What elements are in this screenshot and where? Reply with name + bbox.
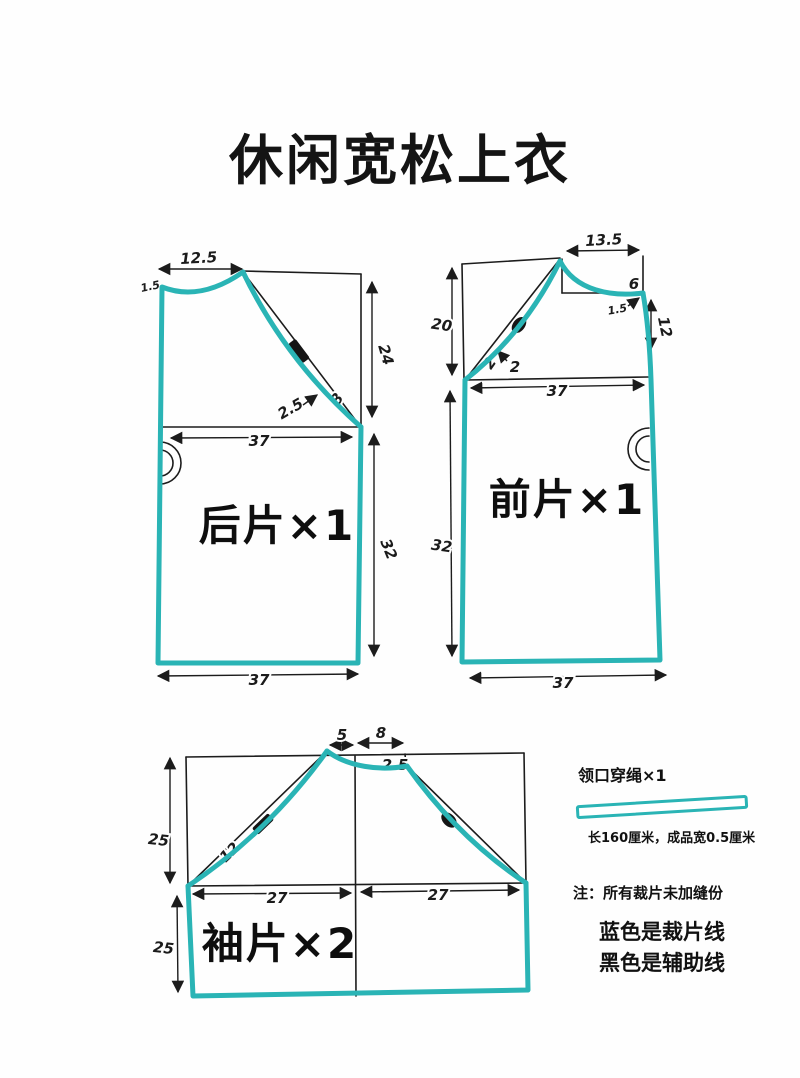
sleeve-underarm-aux-line: [188, 883, 526, 886]
sleeve-piece-name: 袖片×2: [202, 919, 358, 968]
back-piece: 12.5 1.5 24 37 32 37 2.5 8 后片×1: [139, 248, 401, 689]
front-side-dim-line: [450, 391, 452, 656]
sleeve-right-aux-line: [524, 753, 526, 883]
pattern-sheet: 休闲宽松上衣 12.5 1.5 24 37 32 37 2.5: [0, 0, 800, 1078]
sleeve-left-aux-line: [186, 757, 188, 886]
sleeve-cap-right-label: 8: [376, 724, 386, 742]
front-hem-label: 37: [553, 674, 574, 692]
front-piece: 13.5 20 6 1.5 12 37 32 37 2 2: [430, 230, 676, 692]
back-neck-drop-label: 1.5: [139, 278, 161, 295]
front-edge-label: 12: [654, 315, 676, 339]
back-side-label: 32: [376, 536, 401, 562]
back-raglan-depth-label: 24: [374, 342, 397, 367]
sleeve-lower-length-label: 25: [152, 938, 175, 958]
front-top-aux-line: [462, 258, 560, 264]
back-curve-gap-arrow: [303, 395, 317, 405]
sleeve-cap-left-label: 5: [337, 726, 347, 744]
sleeve-underarm-right-label: 27: [428, 886, 449, 904]
sleeve-cap-height-label: 25: [147, 830, 170, 850]
front-neck-gap-arrow: [628, 298, 639, 306]
front-side-notch-arc-inner: [636, 436, 649, 462]
sleeve-lower-length-dim-line: [177, 896, 178, 992]
drawstring-spec: 长160厘米，成品宽0.5厘米: [588, 827, 755, 846]
front-raglan-depth-label: 20: [430, 315, 453, 336]
back-top-aux-line: [242, 271, 361, 274]
front-underarm-aux-line: [465, 377, 648, 380]
front-left-aux-line: [462, 264, 464, 380]
front-chest-label: 37: [547, 382, 568, 400]
back-hem-label: 37: [249, 671, 270, 689]
back-cut-outline: [158, 272, 361, 663]
front-shoulder-width-label: 13.5: [585, 230, 623, 250]
legend-cut-line: 蓝色是裁片线: [599, 916, 725, 946]
front-neck-gap-label: 1.5: [607, 301, 629, 317]
front-side-label: 32: [430, 536, 453, 557]
back-neck-width-label: 12.5: [180, 248, 218, 268]
back-piece-name: 后片×1: [199, 501, 355, 550]
front-piece-name: 前片×1: [489, 475, 645, 524]
sleeve-left-diag-aux-line: [188, 751, 327, 886]
back-curve-gap-label: 2.5: [274, 394, 306, 423]
sleeve-piece: 5 8 2.5 25 12 27 27 25 袖片×2: [147, 724, 528, 996]
back-chest-label: 37: [249, 432, 270, 450]
front-shoulder-width-dim-line: [567, 250, 639, 251]
front-side-notch-arc-outer: [628, 428, 649, 470]
back-side-notch-arc-outer: [160, 442, 181, 484]
drawstring-title: 领口穿绳×1: [578, 762, 667, 786]
legend-aux-line: 黑色是辅助线: [599, 947, 725, 977]
front-neck-depth-label: 6: [629, 275, 639, 293]
sleeve-underarm-left-label: 27: [267, 889, 288, 907]
sleeve-right-diag-aux-line: [407, 766, 526, 883]
front-curve-gap-b-label: 2: [510, 358, 520, 376]
seam-allowance-note: 注：所有裁片未加缝份: [573, 882, 723, 903]
